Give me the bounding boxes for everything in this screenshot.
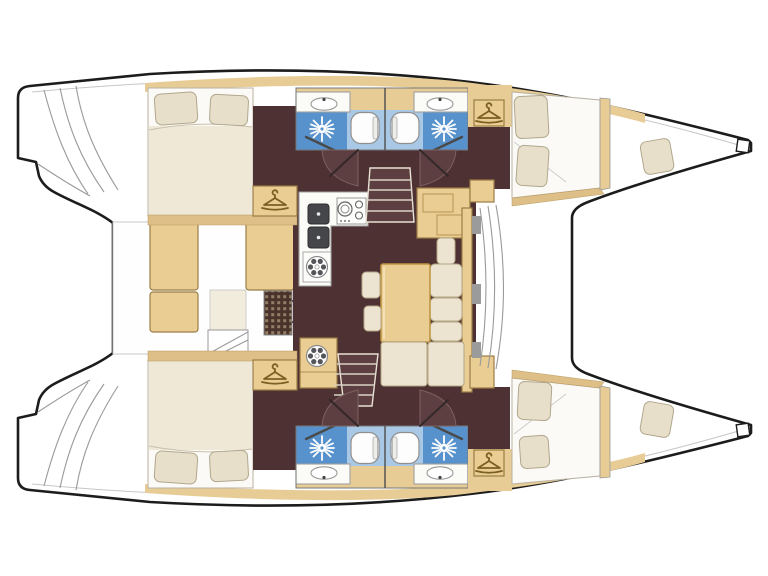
bench-cushion xyxy=(381,342,427,386)
shower-icon xyxy=(310,117,334,141)
port-fore-cabin xyxy=(468,85,675,206)
stool xyxy=(364,306,381,331)
pillow xyxy=(209,94,249,126)
cockpit xyxy=(113,222,301,354)
pillow xyxy=(516,145,550,187)
bulkhead xyxy=(600,98,610,190)
stool xyxy=(362,272,380,298)
companionway-steps-port xyxy=(366,168,414,222)
settee-cushion xyxy=(430,298,462,321)
pillow xyxy=(519,435,550,469)
shower-icon xyxy=(432,117,456,141)
washbasin-icon xyxy=(427,467,453,479)
engine-hatch-grate xyxy=(264,291,292,335)
toilet-icon xyxy=(391,113,419,144)
shower-icon xyxy=(310,436,334,460)
window-mullion xyxy=(472,216,481,234)
cockpit-seat-pad xyxy=(210,290,246,330)
starboard-aft-head xyxy=(296,424,385,488)
duvet xyxy=(149,126,252,215)
window-mullion xyxy=(472,342,481,358)
wardrobe xyxy=(253,360,297,390)
pillow xyxy=(209,450,249,482)
galley-aft-unit xyxy=(300,338,337,388)
galley-stove xyxy=(337,198,366,224)
floorplan-canvas xyxy=(0,0,768,576)
cabin-entry-floor xyxy=(253,390,297,470)
wardrobe xyxy=(474,100,504,126)
bow-fitting-starboard xyxy=(736,423,750,437)
toilet-icon xyxy=(391,433,419,464)
cockpit-bench-right xyxy=(246,222,294,290)
side-locker-bottom xyxy=(470,356,494,388)
cockpit-bench-left-fwd xyxy=(150,222,198,290)
port-aft-head xyxy=(296,88,385,152)
dinette-table xyxy=(381,264,430,342)
forepeak-pillow xyxy=(639,138,674,176)
starboard-fore-cabin xyxy=(468,370,675,491)
starboard-aft-cabin xyxy=(148,351,297,488)
port-aft-cabin xyxy=(148,88,297,225)
side-locker-top xyxy=(470,180,494,202)
window-mullion xyxy=(472,284,481,304)
shower-icon xyxy=(432,436,456,460)
cockpit-step xyxy=(208,330,248,354)
pillow xyxy=(154,92,198,126)
corner-cushion xyxy=(437,238,455,264)
washbasin-icon xyxy=(311,467,337,479)
port-fore-head xyxy=(385,88,468,152)
bow-fitting-port xyxy=(736,139,750,153)
washbasin-icon xyxy=(427,98,453,110)
washbasin-icon xyxy=(311,98,337,110)
starboard-fore-head xyxy=(385,424,468,488)
cabin-entry-floor xyxy=(468,387,510,449)
forepeak-pillow xyxy=(639,401,674,439)
pillow xyxy=(517,381,552,421)
settee-cushion xyxy=(430,264,462,297)
pillow xyxy=(514,95,549,139)
pillow xyxy=(154,451,198,485)
catamaran-floorplan xyxy=(0,0,768,576)
duvet xyxy=(149,361,252,450)
wardrobe xyxy=(253,186,297,216)
galley-round-vent xyxy=(303,252,331,282)
round-vent-icon xyxy=(307,346,328,367)
settee-cushion xyxy=(430,322,462,341)
cockpit-bench-left-aft xyxy=(150,292,198,332)
bulkhead xyxy=(600,386,610,478)
wardrobe xyxy=(474,450,504,476)
toilet-icon xyxy=(351,433,379,464)
cabin-entry-floor xyxy=(253,106,297,186)
bench-cushion xyxy=(428,342,464,386)
toilet-icon xyxy=(351,113,379,144)
